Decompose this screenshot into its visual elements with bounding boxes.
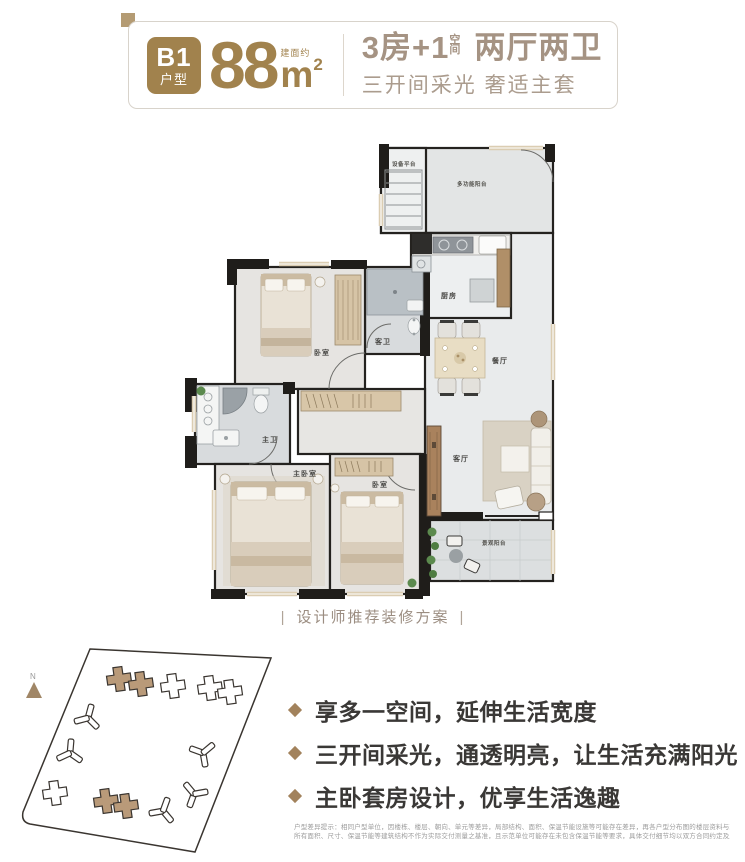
headline: 3房+1 空 间 两厅两卫	[362, 32, 603, 63]
svg-text:N: N	[30, 672, 36, 681]
selling-points-list: 享多一空间，延伸生活宽度 三开间采光，通透明亮，让生活充满阳光 主卧套房设计，优…	[288, 688, 738, 817]
headline-stacked-chars: 空 间	[449, 35, 460, 55]
north-arrow-icon: N	[26, 672, 42, 698]
room-label-multi-balcony: 多功能阳台	[457, 180, 487, 188]
plan-caption-text: 设计师推荐装修方案	[296, 609, 449, 626]
selling-point: 三开间采光，通透明亮，让生活充满阳光	[288, 731, 738, 774]
corridor-closet	[301, 391, 401, 411]
diamond-bullet-icon	[288, 788, 302, 802]
bedroom-top-furniture	[261, 274, 361, 356]
room-label-bedroom-second: 卧室	[372, 480, 388, 489]
area-value: 88	[209, 38, 276, 92]
unit-code: B1	[156, 44, 191, 70]
unit-code-label: 户型	[160, 73, 188, 86]
disclaimer-line-1: 户型差异提示：相同户型单位，因楼栋、楼层、朝向、单元等差异，局部结构、面积、保温…	[294, 823, 730, 832]
room-label-master-bedroom: 主卧室	[293, 469, 317, 478]
floor-plan: 设备平台 多功能阳台 厨房 客卫 卧室 餐厅 主卫 主卧室 卧室 客厅 景观阳台	[183, 142, 563, 602]
unit-type-badge: B1 户型	[147, 37, 201, 94]
selling-point: 享多一空间，延伸生活宽度	[288, 688, 738, 731]
area-unit: 建面约 m 2	[280, 46, 322, 90]
header-titles: 3房+1 空 间 两厅两卫 三开间采光 奢适主套	[362, 32, 603, 99]
plan-caption: |设计师推荐装修方案|	[183, 606, 563, 627]
header-divider	[343, 34, 344, 96]
room-label-view-balcony: 景观阳台	[481, 539, 506, 547]
header-card: B1 户型 88 建面约 m 2 3房+1 空 间 两厅两卫 三开间采光 奢适主…	[128, 21, 618, 109]
diamond-bullet-icon	[288, 702, 302, 716]
diamond-bullet-icon	[288, 745, 302, 759]
room-label-dining: 餐厅	[491, 356, 508, 365]
disclaimer-line-2: 所有面积、尺寸、保温节能等建筑结构不作为实际交付测量之基准，且示范单位可能存在未…	[294, 832, 730, 841]
area-figure: 88 建面约 m 2	[209, 38, 323, 92]
room-label-equipment: 设备平台	[392, 160, 416, 168]
room-label-bedroom-top: 卧室	[314, 348, 330, 357]
master-bedroom-furniture	[220, 474, 325, 586]
room-label-master-bath: 主卫	[262, 435, 278, 444]
room-label-living: 客厅	[452, 454, 469, 463]
site-plan: N	[18, 646, 283, 860]
disclaimer: 户型差异提示：相同户型单位，因楼栋、楼层、朝向、单元等差异，局部结构、面积、保温…	[294, 823, 730, 841]
sub-headline: 三开间采光 奢适主套	[362, 69, 603, 99]
room-label-guest-bath: 客卫	[374, 337, 391, 346]
room-label-kitchen: 厨房	[441, 291, 457, 300]
selling-point: 主卧套房设计，优享生活逸趣	[288, 774, 738, 817]
